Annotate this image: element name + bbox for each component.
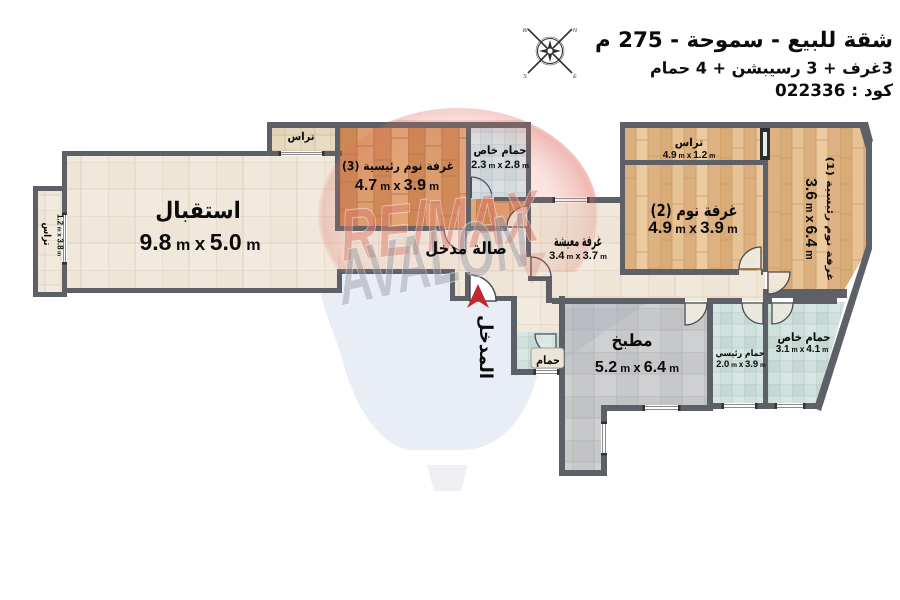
svg-text:3.4 m x 3.7 m: 3.4 m x 3.7 m xyxy=(549,250,607,262)
svg-text:W: W xyxy=(522,28,528,34)
svg-text:E: E xyxy=(573,74,577,80)
svg-text:2.3 m x 2.8 m: 2.3 m x 2.8 m xyxy=(471,159,529,171)
svg-text:N: N xyxy=(573,28,577,34)
svg-text:S: S xyxy=(523,74,527,80)
